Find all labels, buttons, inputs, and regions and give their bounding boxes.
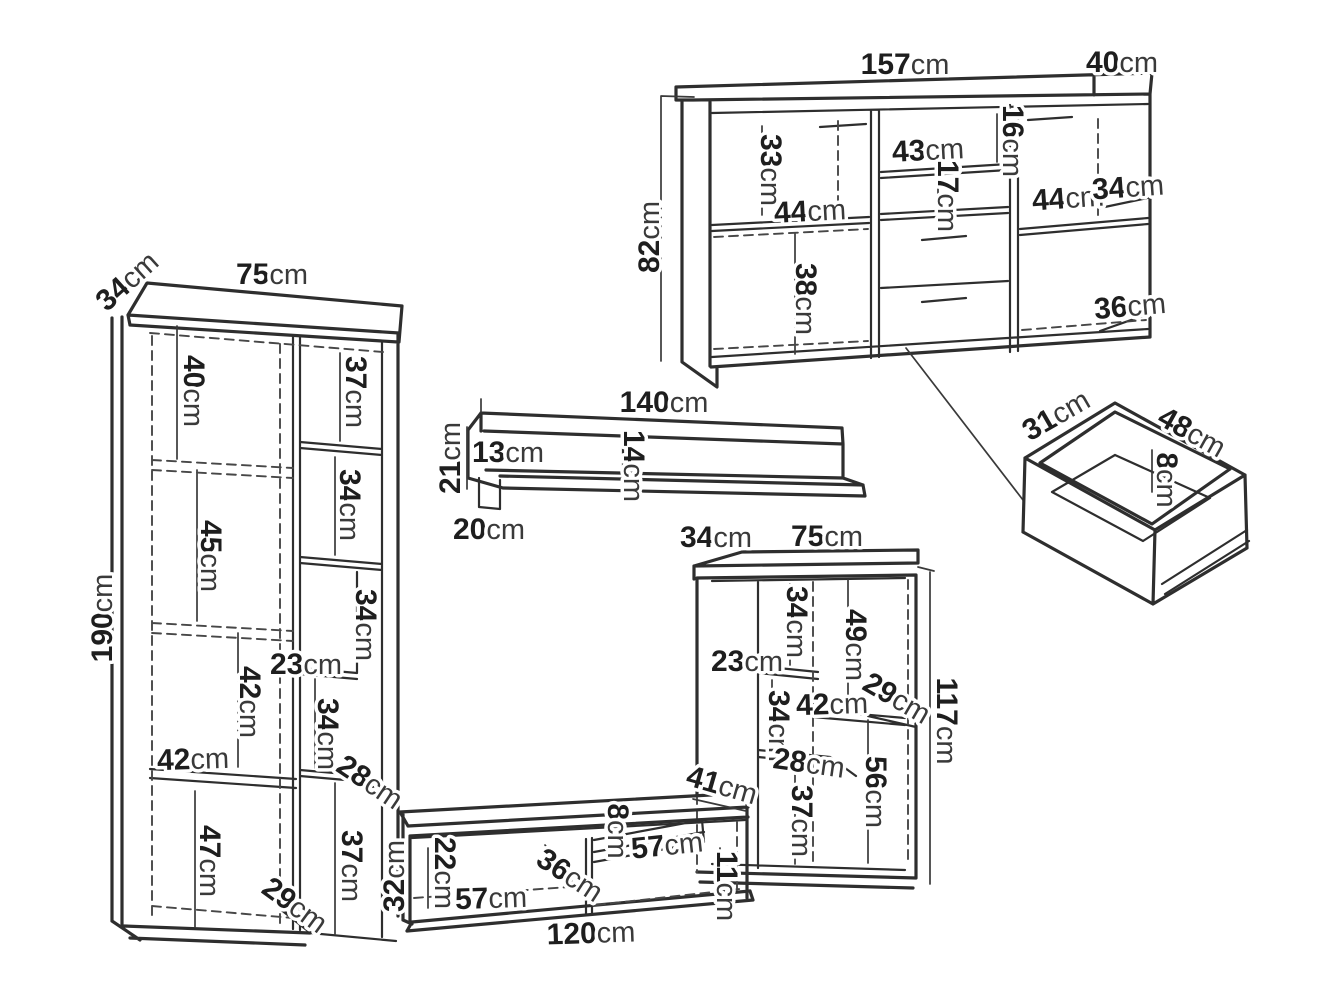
dim-bookcase-left-lower-height: 42cm (233, 666, 266, 738)
dim-tv-stand-height: 32cm (378, 840, 411, 912)
dim-bookcase-width: 75cm (236, 258, 308, 291)
dim-cabinet-height: 117cm (930, 677, 963, 764)
dim-bookcase-shelf-width: 42cm (156, 742, 229, 777)
dim-tv-stand-shelf-gap-height: 8cm (601, 803, 634, 858)
dim-bookcase-right-upper-height: 34cm (333, 469, 366, 541)
dim-bookcase-niche-width: 23cm (270, 648, 342, 681)
dim-bookcase-top-right-height: 37cm (339, 356, 372, 428)
dim-cabinet-lower-shelf-width: 28cm (771, 742, 847, 785)
dim-sideboard-height: 82cm (633, 201, 666, 273)
dim-cabinet-lower-left-height: 37cm (785, 785, 818, 857)
bookcase-drawing: 34cm 75cm 190cm 40cm 37cm 45cm 34cm 34cm… (86, 245, 409, 945)
dim-cabinet-width: 75cm (791, 520, 863, 553)
dim-sideboard-right-bottom-height: 36cm (1093, 287, 1168, 326)
dim-wall-shelf-left-inner-height: 13cm (472, 436, 544, 469)
dim-tv-stand-left-opening-width: 57cm (454, 881, 527, 916)
dim-tv-stand-width: 120cm (546, 915, 636, 951)
dim-wall-shelf-bracket-depth: 20cm (453, 513, 525, 546)
dim-sideboard-width: 157cm (861, 48, 950, 81)
dim-bookcase-bottom-right-height: 37cm (335, 830, 368, 902)
dim-sideboard-depth: 40cm (1086, 46, 1158, 79)
dim-drawer-height: 8cm (1150, 452, 1183, 507)
dim-tv-stand-below-shelf-height: 11cm (710, 851, 743, 921)
dim-sideboard-left-top-height: 33cm (754, 134, 787, 206)
dim-wall-shelf-mid-inner-height: 14cm (617, 430, 650, 502)
dim-sideboard-middle-top-height: 16cm (996, 105, 1029, 177)
dim-cabinet-upper-left-height: 34cm (780, 586, 813, 658)
dim-cabinet-lower-right-height: 56cm (859, 756, 892, 828)
dim-bookcase-right-lower-height: 34cm (311, 698, 344, 770)
dim-tv-stand-depth: 41cm (683, 760, 761, 812)
dim-sideboard-middle-shelf-gap: 17cm (931, 160, 964, 232)
dim-sideboard-left-shelf-width: 44cm (773, 193, 847, 230)
dim-sideboard-right-shelf-depth: 34cm (1091, 169, 1165, 207)
tv-stand-drawing: 41cm 8cm 57cm 22cm 36cm 57cm 11cm 32cm 1… (378, 760, 761, 952)
dim-bookcase-height: 190cm (86, 574, 119, 663)
dim-bookcase-left-mid-height: 45cm (194, 520, 227, 592)
dim-cabinet-depth: 34cm (680, 521, 752, 554)
diagram-svg: 157cm 40cm 82cm 33cm 44cm 38cm 43cm 16cm… (0, 0, 1341, 1006)
dim-tv-stand-shelf-width: 57cm (630, 825, 705, 865)
dim-sideboard-left-bottom-height: 38cm (789, 263, 822, 335)
dim-bookcase-bottom-left-height: 47cm (193, 825, 226, 897)
dim-bookcase-base-depth: 29cm (256, 871, 334, 940)
display-cabinet-drawing: 34cm 75cm 117cm 34cm 49cm 23cm 34cm 42cm… (680, 520, 963, 888)
dim-wall-shelf-width: 140cm (620, 386, 709, 419)
dim-bookcase-right-mid-height: 34cm (349, 589, 382, 661)
dim-cabinet-shelf-width: 42cm (795, 687, 868, 722)
dim-wall-shelf-height: 21cm (434, 422, 467, 494)
drawer-location-pointer-line (906, 348, 1023, 500)
dim-cabinet-upper-right-height: 49cm (839, 609, 872, 681)
dim-bookcase-top-left-height: 40cm (177, 355, 210, 427)
dim-cabinet-niche-width: 23cm (711, 645, 783, 678)
drawer-drawing: 31cm 48cm 8cm (1017, 383, 1249, 604)
dim-bookcase-depth: 34cm (90, 245, 166, 318)
furniture-dimensions-diagram: 157cm 40cm 82cm 33cm 44cm 38cm 43cm 16cm… (0, 0, 1341, 1006)
